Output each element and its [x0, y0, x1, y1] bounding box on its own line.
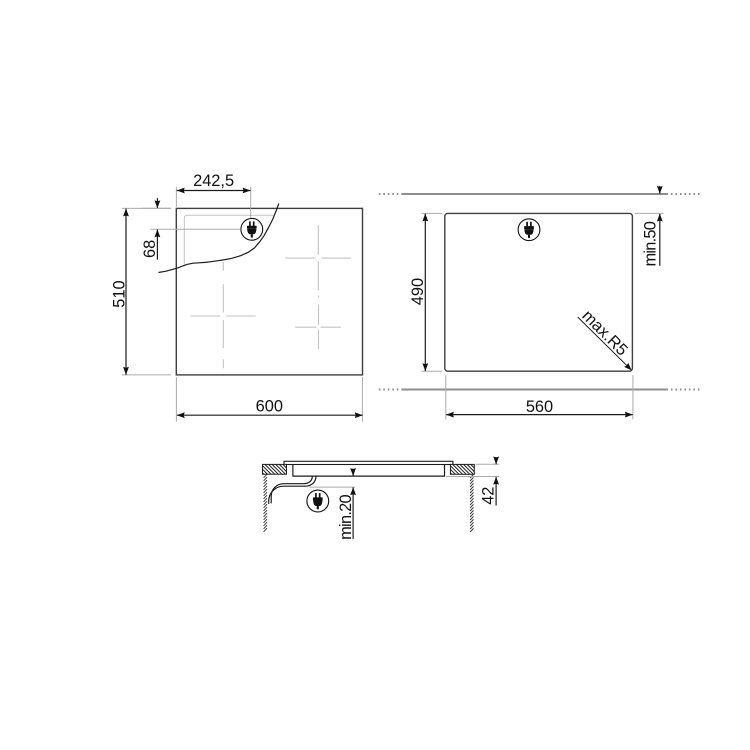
svg-text:min.20: min.20 — [337, 495, 355, 540]
svg-text:600: 600 — [256, 397, 283, 415]
svg-text:510: 510 — [111, 280, 129, 307]
svg-text:560: 560 — [526, 398, 553, 416]
svg-text:242,5: 242,5 — [193, 172, 234, 190]
svg-text:68: 68 — [141, 240, 159, 258]
svg-text:490: 490 — [409, 278, 427, 305]
svg-text:42: 42 — [480, 487, 498, 505]
svg-text:min.50: min.50 — [642, 221, 660, 266]
